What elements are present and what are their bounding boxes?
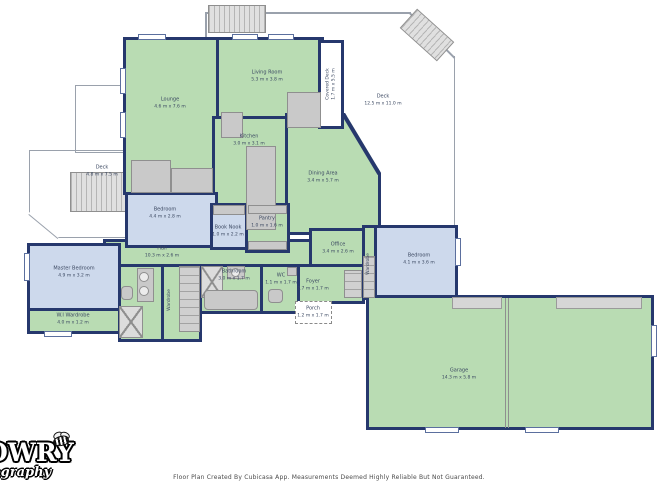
book-nook-desk <box>213 205 245 215</box>
room-garage <box>366 295 654 430</box>
room-label-wc: WC1.1 m x 1.7 m <box>265 272 296 285</box>
room-bedroom-left <box>125 192 218 248</box>
wardrobe-center-shelves <box>179 266 200 332</box>
room-label-kitchen: Kitchen3.0 m x 3.1 m <box>233 133 264 146</box>
room-label-master-bedroom: Master Bedroom4.9 m x 3.2 m <box>53 265 94 278</box>
bathroom-tub <box>204 290 258 310</box>
garage-door-right <box>556 297 642 309</box>
floor-plan-canvas: Lounge4.6 m x 7.6 m Living Room5.3 m x 3… <box>0 0 658 493</box>
room-label-lounge: Lounge4.6 m x 7.6 m <box>154 96 185 109</box>
window <box>24 253 30 281</box>
lounge-sofa <box>131 160 171 193</box>
room-label-hall: Hall10.3 m x 2.6 m <box>145 245 179 258</box>
room-label-deck-top: Deck12.5 m x 11.0 m <box>364 93 401 106</box>
room-label-office: Office3.4 m x 2.6 m <box>322 241 353 254</box>
room-label-foyer: Foyer2.7 m x 1.7 m <box>297 278 328 291</box>
room-label-deck-left: Deck4.8 m x 7.5 m <box>86 164 117 177</box>
window <box>232 34 258 40</box>
window <box>268 34 294 40</box>
room-label-bedroom-left: Bedroom4.4 m x 2.8 m <box>149 206 180 219</box>
room-label-bathroom: Bathroom3.0 m x 1.7 m <box>218 268 249 281</box>
garage-door-left <box>452 297 502 309</box>
stairs-deck-corner <box>400 9 455 62</box>
window <box>455 238 461 266</box>
window <box>651 325 657 357</box>
room-label-pantry: Pantry1.0 m x 1.6 m <box>251 215 282 228</box>
room-label-living: Living Room5.3 m x 3.8 m <box>251 69 282 82</box>
room-label-bedroom-right: Bedroom4.1 m x 3.6 m <box>403 252 434 265</box>
window <box>120 112 126 138</box>
lounge-sofa-2 <box>171 168 213 193</box>
room-label-book-nook: Book Nook1.0 m x 2.2 m <box>212 224 243 237</box>
window <box>44 331 72 337</box>
pantry-shelf-top <box>248 205 287 214</box>
garage-divider-wall <box>505 298 509 428</box>
room-label-wi-wardrobe: W.I Wardrobe4.0 m x 1.2 m <box>56 312 89 325</box>
window <box>525 427 559 433</box>
room-label-porch: Porch1.2 m x 1.7 m <box>297 305 328 318</box>
stairs-deck-left <box>70 172 126 212</box>
ensuite-shower <box>119 306 143 338</box>
ensuite-toilet <box>121 286 133 300</box>
ensuite-sink-2 <box>139 286 149 296</box>
foyer-closet <box>344 270 362 298</box>
room-label-dining: Dining Area3.4 m x 5.7 m <box>307 170 338 183</box>
ensuite-sink-1 <box>139 272 149 282</box>
pantry-shelf-bottom <box>248 241 287 250</box>
bee-icon <box>52 432 70 444</box>
window <box>120 68 126 94</box>
room-label-wardrobe-right: Wardrobe <box>366 253 372 275</box>
room-label-wardrobe-center: Wardrobe <box>167 289 173 311</box>
window <box>138 34 166 40</box>
footer-disclaimer: Floor Plan Created By Cubicasa App. Meas… <box>0 474 658 481</box>
deck-top-outline-right <box>454 56 456 231</box>
fireplace <box>287 92 321 128</box>
room-label-covered-deck: Covered Deck1.7 m x 5.5 m <box>325 68 336 99</box>
deck-top-outline-left <box>205 12 207 40</box>
stairs-top <box>208 5 266 33</box>
room-label-garage: Garage14.3 m x 5.8 m <box>442 367 476 380</box>
wc-toilet <box>268 289 283 303</box>
window <box>425 427 459 433</box>
